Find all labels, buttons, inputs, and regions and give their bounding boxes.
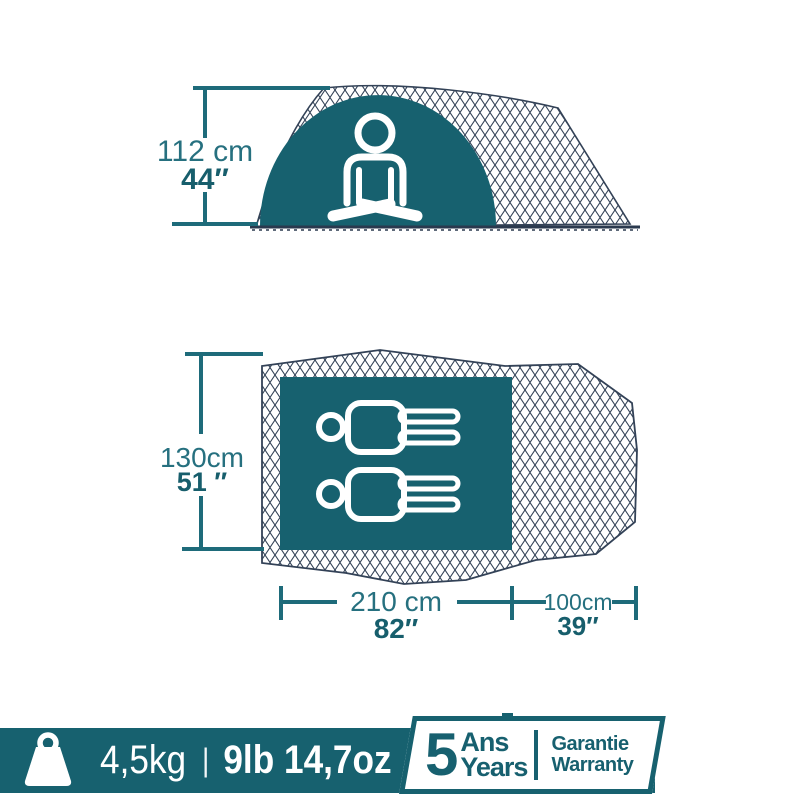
tent-side-view bbox=[240, 75, 650, 235]
weight-imperial-value: 9lb 14,7oz bbox=[223, 738, 391, 783]
floor-width-top-cap bbox=[185, 352, 263, 356]
bedroom-length-metric: 210 cm bbox=[330, 588, 462, 616]
side-dim-top-cap bbox=[193, 86, 330, 90]
bedroom-length-line-a bbox=[283, 600, 337, 604]
weight-icon bbox=[22, 732, 74, 790]
warranty-word-en: Warranty bbox=[551, 755, 633, 776]
warranty-years-number: 5 bbox=[425, 728, 456, 782]
floor-width-line-upper bbox=[199, 352, 203, 434]
bedroom-length-line-b bbox=[457, 600, 510, 604]
side-dim-line-lower bbox=[203, 192, 207, 226]
porch-length-imperial: 39″ bbox=[518, 613, 638, 639]
weight-separator: | bbox=[202, 742, 209, 779]
side-height-imperial: 44″ bbox=[140, 165, 270, 195]
weight-values: 4,5kg | 9lb 14,7oz bbox=[100, 728, 392, 793]
floor-width-line-lower bbox=[199, 496, 203, 551]
warranty-word-fr: Garantie bbox=[551, 734, 633, 755]
tent-floor-plan bbox=[250, 340, 650, 590]
warranty-divider bbox=[534, 730, 538, 780]
floor-width-imperial: 51 ″ bbox=[137, 469, 267, 496]
warranty-badge: 5 Ans Years Garantie Warranty bbox=[399, 716, 652, 794]
floor-width-bottom-cap bbox=[182, 547, 264, 551]
tent-spec-diagram: 112 cm 44″ 130cm 51 ″ 210 cm 82″ 100cm 3… bbox=[0, 0, 800, 800]
weight-metric-value: 4,5kg bbox=[100, 738, 186, 783]
warranty-unit-en: Years bbox=[460, 755, 527, 780]
warranty-badge-content: 5 Ans Years Garantie Warranty bbox=[399, 716, 652, 794]
bedroom-length-imperial: 82″ bbox=[330, 615, 462, 643]
side-dim-line-upper bbox=[203, 86, 207, 138]
side-dim-bottom-cap bbox=[172, 222, 258, 226]
